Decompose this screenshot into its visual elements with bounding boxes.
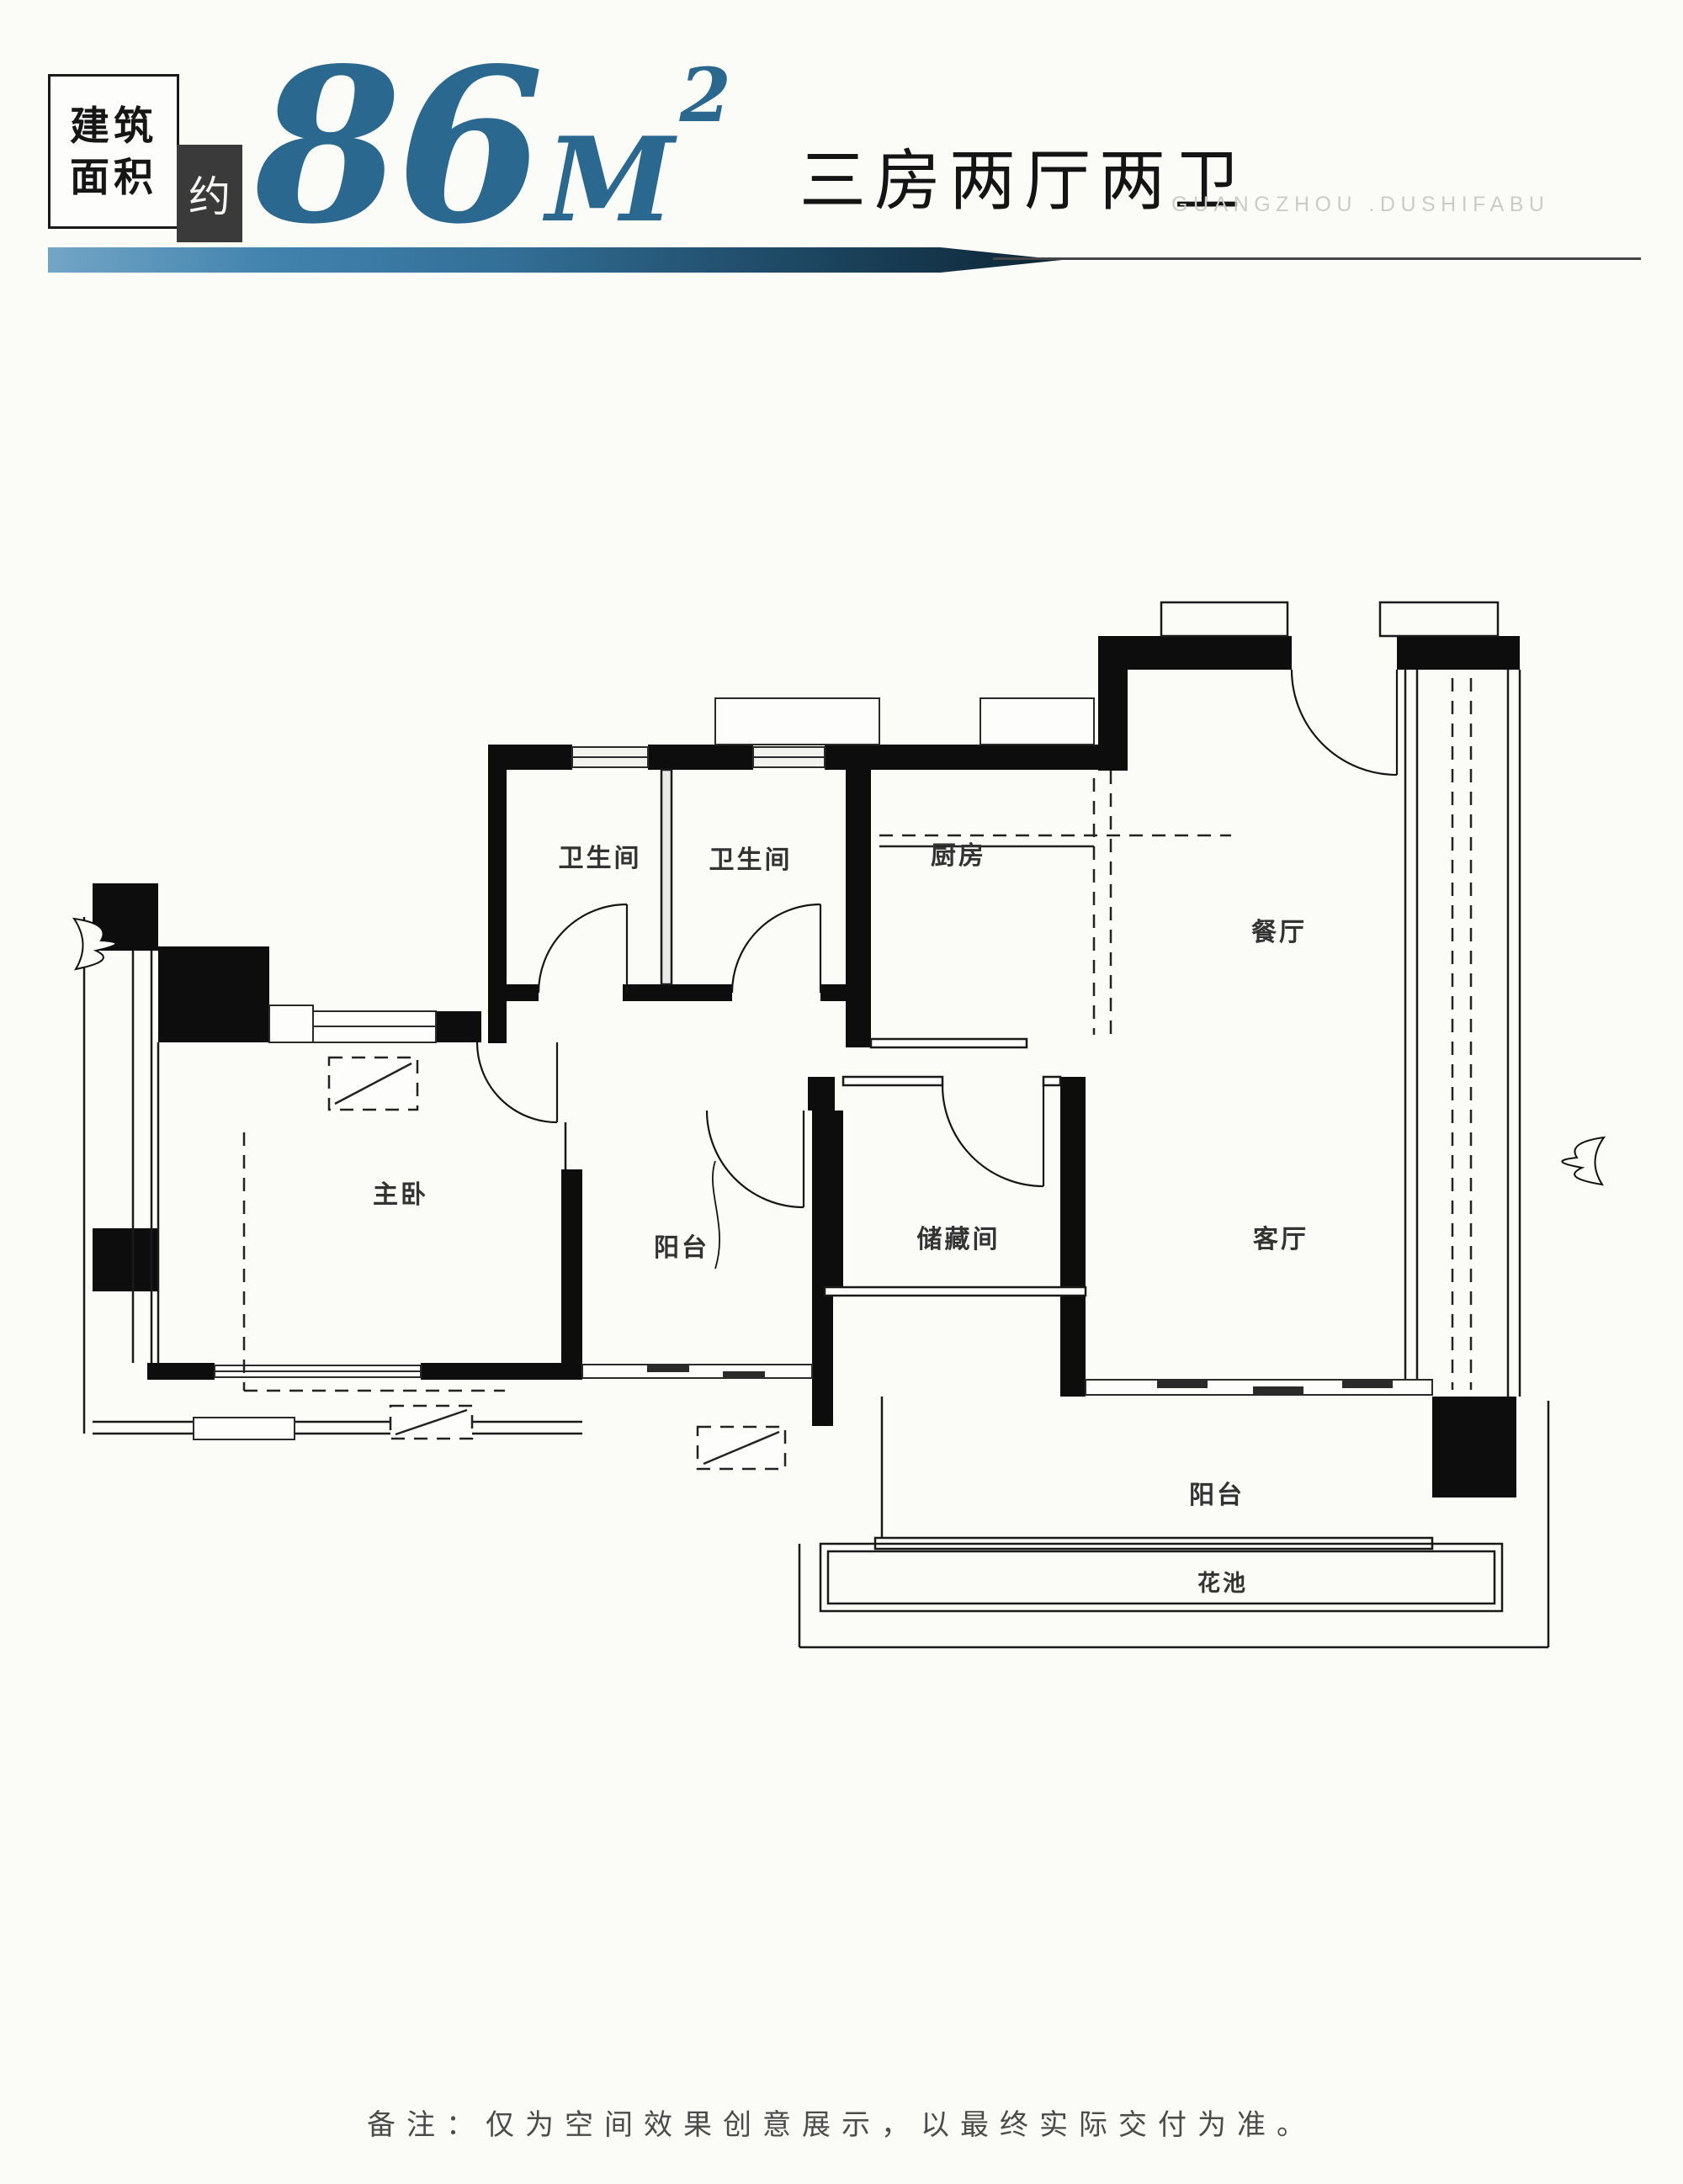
room-label-storage: 储藏间 bbox=[917, 1226, 1001, 1254]
room-label-balcony-left: 阳台 bbox=[654, 1233, 709, 1262]
floorplan-drawing: 卫生间 卫生间 厨房 餐厅 主卧 阳台 储藏间 客厅 阳台 花池 bbox=[67, 580, 1616, 1708]
approx-label: 约 bbox=[188, 163, 231, 224]
area-unit: M bbox=[546, 122, 675, 238]
floorplan-page: 建筑 面积 约 86 M 2 三房两厅两卫 GUANGZHOU .DUSHIFA… bbox=[0, 0, 1683, 2184]
area-number: 86 bbox=[254, 40, 539, 252]
building-area-line2: 面积 bbox=[70, 151, 157, 203]
building-area-box: 建筑 面积 bbox=[48, 74, 179, 229]
room-label-planter: 花池 bbox=[1197, 1571, 1248, 1596]
approx-badge: 约 bbox=[177, 145, 242, 242]
room-label-bathroom-1: 卫生间 bbox=[559, 845, 642, 872]
room-label-living: 客厅 bbox=[1253, 1225, 1309, 1254]
accent-line bbox=[993, 257, 1641, 260]
area-value: 86 M 2 bbox=[254, 40, 731, 251]
accent-bar bbox=[48, 247, 1062, 273]
building-area-line1: 建筑 bbox=[70, 100, 157, 151]
watermark-text: GUANGZHOU .DUSHIFABU bbox=[1171, 193, 1549, 217]
area-exponent: 2 bbox=[679, 58, 730, 132]
break-symbol-right bbox=[1562, 1137, 1604, 1185]
disclaimer-note: 备注：仅为空间效果创意展示，以最终实际交付为准。 bbox=[0, 2102, 1683, 2143]
room-label-balcony-bottom: 阳台 bbox=[1189, 1481, 1245, 1509]
room-label-bathroom-2: 卫生间 bbox=[709, 846, 793, 874]
room-label-master: 主卧 bbox=[373, 1181, 428, 1209]
room-label-dining: 餐厅 bbox=[1251, 919, 1307, 946]
room-label-kitchen: 厨房 bbox=[931, 842, 986, 870]
